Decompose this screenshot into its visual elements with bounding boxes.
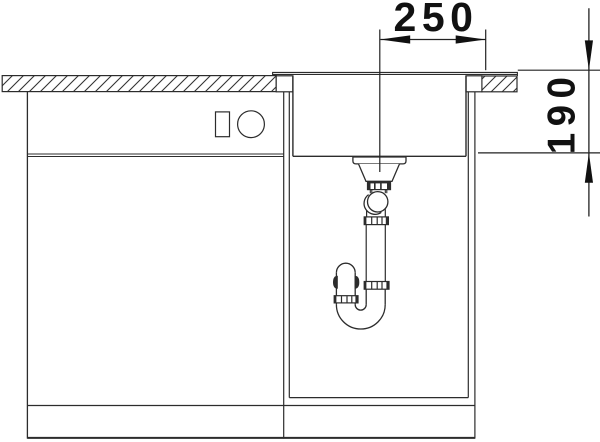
svg-text:250: 250 <box>394 0 479 40</box>
svg-text:190: 190 <box>541 71 584 155</box>
